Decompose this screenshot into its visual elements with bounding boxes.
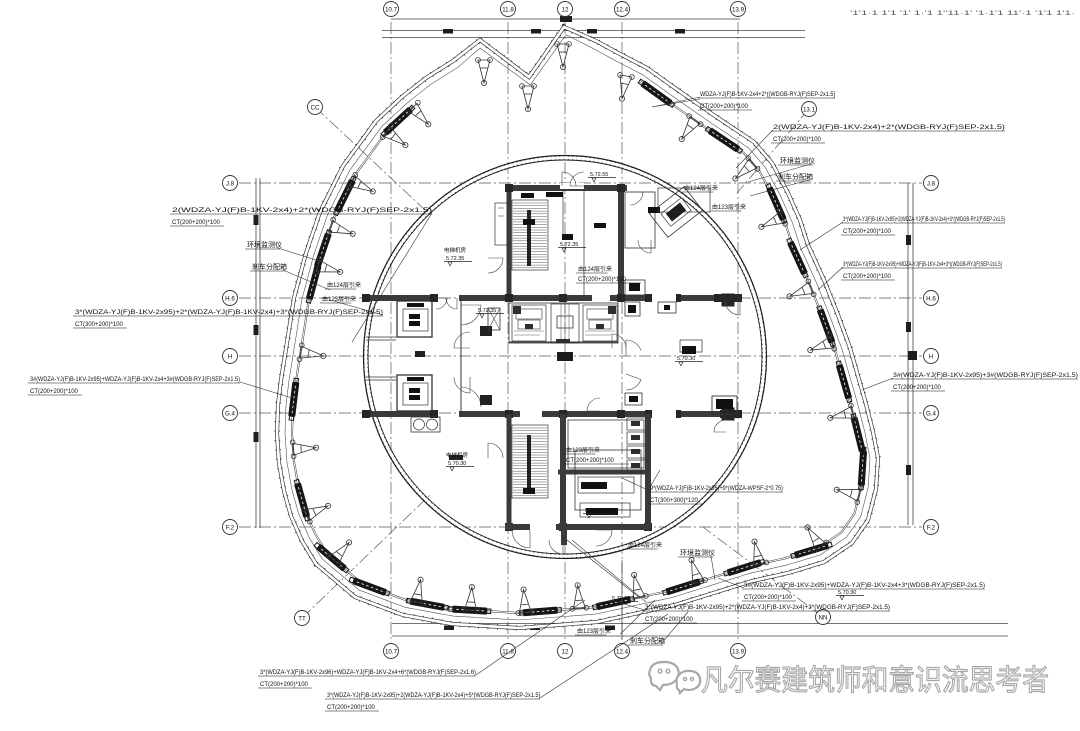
svg-text:3*(WDZA-YJ(F)B-1KV-2x95)+2*(WD: 3*(WDZA-YJ(F)B-1KV-2x95)+2*(WDZA-YJ(F)B-… [645,605,890,611]
svg-text:CT(200+200)*100: CT(200+200)*100 [645,617,694,623]
svg-text:凡尔赛建筑师和意识流思考者: 凡尔赛建筑师和意识流思考者 [701,664,1049,697]
svg-text:5.70.30: 5.70.30 [677,356,695,362]
svg-text:3#(WDZA-YJ(F)B-1KV-2x95)+WDZA-: 3#(WDZA-YJ(F)B-1KV-2x95)+WDZA-YJ(F)B-1KV… [744,583,985,589]
svg-text:刹车分配箱: 刹车分配箱 [630,636,665,645]
svg-text:环境监测仪: 环境监测仪 [680,548,715,557]
svg-text:3#(WDZA-YJ(F)B-1KV-2x95)+3#(WD: 3#(WDZA-YJ(F)B-1KV-2x95)+3#(WDGB-RYJ(F)S… [893,373,1078,379]
svg-text:CT(200+200)*100: CT(200+200)*100 [773,137,822,143]
svg-text:2(WDZA-YJ(F)B-1KV-2x4)+2*(WDGB: 2(WDZA-YJ(F)B-1KV-2x4)+2*(WDGB-RYJ(F)SEP… [773,125,1005,131]
svg-text:电梯机房: 电梯机房 [444,246,467,254]
svg-text:CT(200+200)*100: CT(200+200)*100 [260,682,309,688]
svg-text:CC: CC [311,104,320,111]
svg-text:H.6: H.6 [225,295,235,302]
svg-text:12: 12 [562,6,569,13]
svg-text:CT(200+200)*100: CT(200+200)*100 [744,595,793,601]
svg-text:NN: NN [819,614,828,621]
svg-text:'1'1·1 1'1 '1' 1·'1 1''11·1' ': '1'1·1 1'1 '1' 1·'1 1''11·1' '1·1'1 11'·… [850,10,1075,17]
svg-text:13.1: 13.1 [803,106,816,113]
svg-text:刹车分配箱: 刹车分配箱 [778,172,813,181]
svg-text:11.8: 11.8 [502,6,514,13]
svg-text:由123层引来: 由123层引来 [712,203,746,211]
svg-text:由124层引来: 由124层引来 [578,265,612,273]
svg-text:3*(WDZA-YJ(F)B-1KV-2x95)+2(WDZ: 3*(WDZA-YJ(F)B-1KV-2x95)+2(WDZA-YJ(F)B-1… [843,217,1005,223]
svg-text:13.9: 13.9 [732,6,745,13]
svg-text:5.70.30: 5.70.30 [585,508,603,514]
svg-text:由124层引来: 由124层引来 [684,184,718,192]
svg-text:F.2: F.2 [226,524,235,531]
svg-text:CT(200+200)*100: CT(200+200)*100 [566,458,615,464]
svg-text:J.8: J.8 [226,180,235,187]
svg-text:CT(200+200)*100: CT(200+200)*100 [578,277,627,283]
svg-text:3*(WDZA-YJ(F)B-1KV-2x95)+WDZA-: 3*(WDZA-YJ(F)B-1KV-2x95)+WDZA-YJ(F)B-1KV… [843,262,1002,268]
svg-text:由124层引来: 由124层引来 [628,541,662,549]
svg-text:刹车分配箱: 刹车分配箱 [252,262,287,271]
svg-text:5.70.30: 5.70.30 [448,461,466,467]
svg-text:CT(300+300)*120: CT(300+300)*120 [650,498,699,504]
svg-text:5.72.55: 5.72.55 [590,172,608,178]
svg-text:11.8: 11.8 [502,648,514,655]
svg-text:TT: TT [298,615,306,622]
svg-text:H.6: H.6 [926,295,936,302]
svg-text:由124层引来: 由124层引来 [327,281,361,289]
svg-text:3*(WDZA-YJ(F)B-1KV-2x95)+2*(WD: 3*(WDZA-YJ(F)B-1KV-2x95)+2*(WDZA-YJ(F)B-… [75,310,383,316]
svg-text:10.7: 10.7 [385,648,398,655]
svg-text:12.4: 12.4 [616,648,629,655]
svg-text:3*(WDZA-YJ(F)B-1KV-2x95)+2(WDZ: 3*(WDZA-YJ(F)B-1KV-2x95)+2(WDZA-YJ(F)B-1… [327,693,540,699]
svg-text:3*(WDZA-YJ(F)B-1KV-2x96)+WDZA-: 3*(WDZA-YJ(F)B-1KV-2x96)+WDZA-YJ(F)B-1KV… [260,670,476,676]
svg-text:12: 12 [562,648,569,655]
svg-text:CT(200+200)*100: CT(200+200)*100 [327,705,376,711]
svg-text:12.4: 12.4 [616,6,629,13]
svg-text:5.70.30: 5.70.30 [838,590,856,596]
svg-text:3#(WDZA-YJ(F)B-1KV-2x95)+WDZA-: 3#(WDZA-YJ(F)B-1KV-2x95)+WDZA-YJ(F)B-1KV… [30,377,240,383]
svg-text:CT(200+200)*100: CT(200+200)*100 [843,274,892,280]
svg-text:CT(200+200)*100: CT(200+200)*100 [172,220,221,226]
svg-text:13.9: 13.9 [732,648,745,655]
svg-text:WDZA-YJ(F)B-1KV-2x4+2*((WDGB-R: WDZA-YJ(F)B-1KV-2x4+2*((WDGB-RYJ(F)SEP-2… [700,92,835,98]
svg-text:CT(200+200)*100: CT(200+200)*100 [30,389,79,395]
svg-text:G.4: G.4 [926,410,937,417]
svg-text:5.72.35: 5.72.35 [478,308,496,314]
svg-text:H: H [228,353,232,360]
svg-text:环境监测仪: 环境监测仪 [247,240,282,249]
svg-text:CT(200+200)*100: CT(200+200)*100 [843,229,892,235]
svg-text:由123层引来: 由123层引来 [577,627,611,635]
svg-text:J.8: J.8 [927,180,936,187]
svg-text:CT(200+200)*100: CT(200+200)*100 [893,385,942,391]
svg-text:2(WDZA-YJ(F)B-1KV-2x4)+2*(WDGB: 2(WDZA-YJ(F)B-1KV-2x4)+2*(WDGB-RYJ(F)SEP… [172,208,432,214]
svg-text:由123层引来: 由123层引来 [566,446,600,454]
svg-text:G.4: G.4 [225,410,236,417]
svg-text:环境监测仪: 环境监测仪 [780,156,815,165]
svg-text:10.7: 10.7 [385,6,398,13]
svg-text:5.72.35: 5.72.35 [560,242,578,248]
svg-text:F.2: F.2 [927,524,936,531]
svg-text:H: H [929,353,933,360]
svg-text:由123层引来: 由123层引来 [322,295,356,303]
svg-text:CT(200+200)*100: CT(200+200)*100 [700,104,749,110]
svg-text:9*(WDZA-YJ(F)B-1KV-2x95)+9*(WD: 9*(WDZA-YJ(F)B-1KV-2x95)+9*(WDZA-WPSF-2*… [650,486,783,492]
svg-text:电梯机房: 电梯机房 [446,451,469,459]
svg-text:5.72.35: 5.72.35 [446,256,464,262]
svg-text:CT(300+200)*100: CT(300+200)*100 [75,322,124,328]
